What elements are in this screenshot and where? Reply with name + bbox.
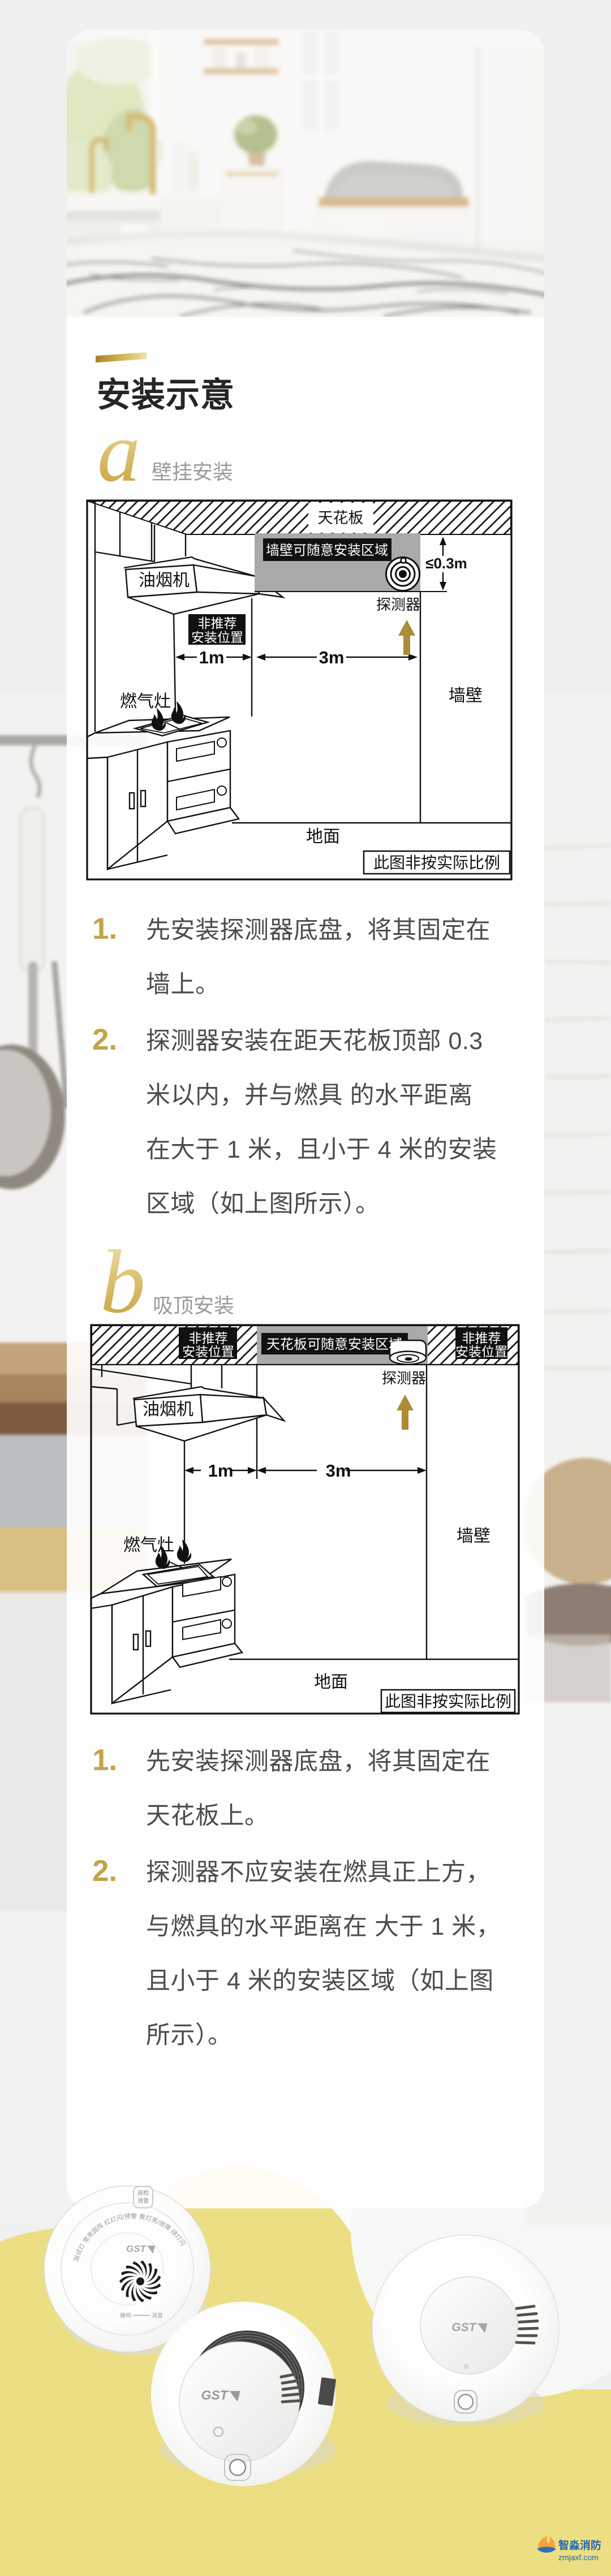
svg-text:1m: 1m <box>199 648 225 667</box>
svg-text:油烟机: 油烟机 <box>143 1400 193 1419</box>
svg-text:探测器: 探测器 <box>376 596 420 613</box>
svg-text:蜂鸣 ━━━ 消音: 蜂鸣 ━━━ 消音 <box>120 2312 163 2319</box>
svg-text:GST◥: GST◥ <box>201 2388 240 2402</box>
svg-text:地面: 地面 <box>314 1673 348 1692</box>
svg-text:地面: 地面 <box>306 827 340 846</box>
svg-text:燃气灶: 燃气灶 <box>123 1536 174 1555</box>
svg-text:此图非按实际比例: 此图非按实际比例 <box>373 854 500 871</box>
svg-text:3m: 3m <box>326 1461 351 1481</box>
svg-text:GST◥: GST◥ <box>126 2243 156 2254</box>
svg-text:墙壁: 墙壁 <box>457 1527 490 1546</box>
svg-text:燃气灶: 燃气灶 <box>120 692 171 711</box>
svg-text:安装位置: 安装位置 <box>182 1344 234 1359</box>
svg-text:≤0.3m: ≤0.3m <box>425 555 467 572</box>
svg-text:油烟机: 油烟机 <box>139 571 190 590</box>
svg-text:◎: ◎ <box>463 2363 469 2370</box>
svg-text:天花板可随意安装区域: 天花板可随意安装区域 <box>266 1337 402 1352</box>
svg-text:探测器: 探测器 <box>382 1370 426 1387</box>
svg-text:非推荐: 非推荐 <box>189 1331 228 1345</box>
svg-text:天花板: 天花板 <box>318 510 364 527</box>
svg-text:墙壁: 墙壁 <box>449 687 483 705</box>
svg-text:墙壁可随意安装区域: 墙壁可随意安装区域 <box>266 543 388 558</box>
svg-text:非推荐: 非推荐 <box>198 616 237 631</box>
svg-text:非推荐: 非推荐 <box>462 1331 501 1345</box>
svg-text:GST◥: GST◥ <box>451 2321 487 2334</box>
svg-text:安装位置: 安装位置 <box>191 630 243 645</box>
svg-text:此图非按实际比例: 此图非按实际比例 <box>385 1693 511 1710</box>
svg-text:zmjaxf.com: zmjaxf.com <box>558 2553 599 2562</box>
svg-text:自检: 自检 <box>137 2189 149 2197</box>
svg-text:1m: 1m <box>208 1461 234 1481</box>
svg-text:3m: 3m <box>319 648 345 667</box>
svg-text:安装位置: 安装位置 <box>455 1344 507 1359</box>
svg-text:智淼消防: 智淼消防 <box>558 2539 601 2552</box>
svg-text:消音: 消音 <box>137 2197 149 2204</box>
